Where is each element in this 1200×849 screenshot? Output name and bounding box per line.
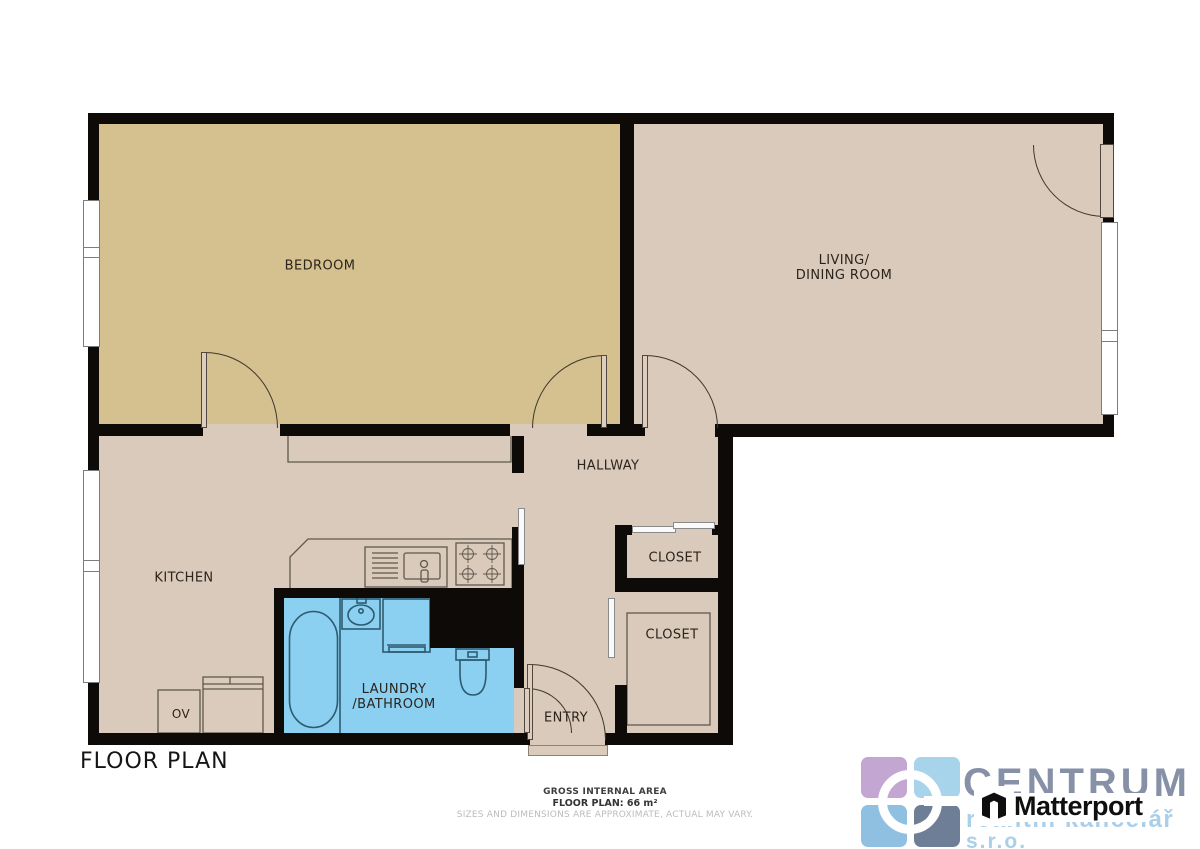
room-label-bedroom: BEDROOM (285, 259, 356, 274)
kitchen-opening-leaf (518, 508, 525, 565)
wall-closet-upper-top (615, 525, 632, 535)
room-label-living-line2: DINING ROOM (796, 268, 892, 283)
wall-bathroom-shaft (430, 590, 524, 648)
kitchen-window (83, 470, 100, 683)
matterport-wordmark: Matterport (1014, 793, 1146, 822)
living-room-door-leaf (642, 355, 648, 428)
room-label-living-line1: LIVING/ (796, 253, 892, 268)
wall-closet-lower-stub (615, 685, 627, 733)
wall-bedroom-living-divider (620, 113, 634, 436)
wall-closet-divider (615, 578, 733, 592)
room-label-oven: OV (172, 707, 190, 721)
room-label-hallway: HALLWAY (577, 459, 640, 474)
room-label-living-dining: LIVING/ DINING ROOM (796, 253, 892, 283)
wall-bottom (88, 733, 530, 745)
wall-mid (280, 424, 510, 436)
closet-sliding-door (673, 522, 715, 529)
centrum-logo-icon (861, 757, 961, 849)
room-label-kitchen: KITCHEN (154, 571, 213, 586)
wall-closet-upper-top (712, 525, 733, 535)
wall-top (88, 113, 1113, 124)
bedroom-window (83, 200, 100, 347)
wall-mid (715, 424, 1113, 437)
wall-bathroom-right (514, 648, 524, 688)
centrum-wordmark: CENTRUM (963, 763, 1191, 803)
wall-kitchen-hall (512, 436, 524, 473)
floor-plan-page: BEDROOM LIVING/ DINING ROOM HALLWAY KITC… (0, 0, 1200, 849)
wall-mid (88, 424, 203, 436)
bathroom-door-leaf (524, 688, 530, 733)
wall-right (1103, 113, 1114, 145)
floor-plan-area-value: FLOOR PLAN: 66 m² (405, 799, 805, 810)
centrum-sro: s.r.o. (966, 831, 1027, 849)
closet-lower-door-leaf (608, 598, 615, 658)
room-label-closet-lower: CLOSET (646, 628, 699, 643)
bedroom-window-mullion (83, 247, 100, 258)
room-label-entry: ENTRY (544, 711, 588, 726)
bedroom-door-leaf (201, 352, 207, 428)
page-title: FLOOR PLAN (80, 749, 229, 774)
closet-sliding-door (632, 526, 676, 533)
room-label-laundry-line2: /BATHROOM (352, 697, 435, 712)
wall-bathroom-left (274, 588, 284, 733)
living-room-window (1101, 222, 1118, 415)
matterport-logo-icon (974, 786, 1014, 826)
living-room-window-mullion (1101, 330, 1118, 342)
footer-note: GROSS INTERNAL AREA FLOOR PLAN: 66 m² SI… (405, 787, 805, 821)
wall-bottom (605, 733, 733, 745)
disclaimer-text: SIZES AND DIMENSIONS ARE APPROXIMATE, AC… (405, 810, 805, 821)
centrum-subtitle: realitní kancelář (966, 808, 1174, 832)
room-label-closet-upper: CLOSET (649, 551, 702, 566)
balcony-door-leaf (1100, 144, 1114, 218)
bedroom-door2-leaf (601, 355, 607, 428)
entry-threshold (528, 745, 608, 756)
bedroom-floor (99, 124, 620, 424)
gross-internal-area-label: GROSS INTERNAL AREA (405, 787, 805, 798)
kitchen-window-mullion (83, 560, 100, 572)
room-label-laundry-line1: LAUNDRY (352, 682, 435, 697)
room-label-laundry-bathroom: LAUNDRY /BATHROOM (352, 682, 435, 712)
